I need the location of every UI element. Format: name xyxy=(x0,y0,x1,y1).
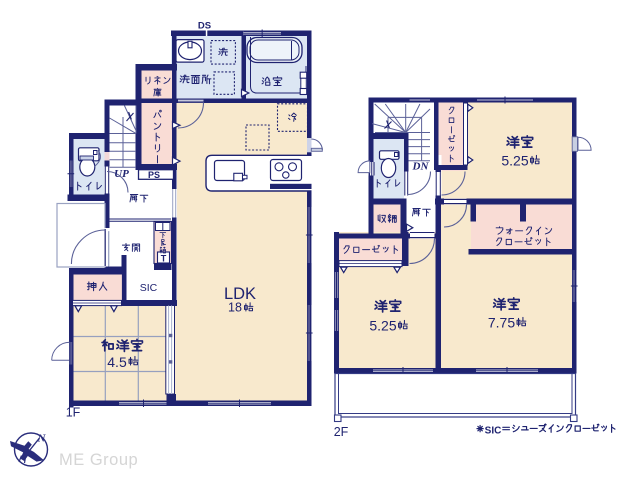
svg-text:UP: UP xyxy=(114,168,129,180)
svg-text:4.5: 4.5 xyxy=(107,354,127,370)
svg-text:7.75: 7.75 xyxy=(488,315,515,331)
svg-text:5.25: 5.25 xyxy=(501,153,528,169)
svg-text:T: T xyxy=(161,254,167,264)
svg-text:ME Group: ME Group xyxy=(59,451,138,469)
svg-text:PS: PS xyxy=(148,170,160,180)
svg-text:N: N xyxy=(37,433,47,445)
svg-text:18: 18 xyxy=(228,301,242,315)
svg-text:DN: DN xyxy=(412,161,430,173)
svg-text:DS: DS xyxy=(198,21,211,32)
svg-text:1F: 1F xyxy=(66,406,81,420)
svg-text:2F: 2F xyxy=(334,425,349,439)
svg-text:SIC: SIC xyxy=(485,426,502,437)
svg-text:5.25: 5.25 xyxy=(369,318,396,334)
svg-text:SIC: SIC xyxy=(140,282,158,294)
